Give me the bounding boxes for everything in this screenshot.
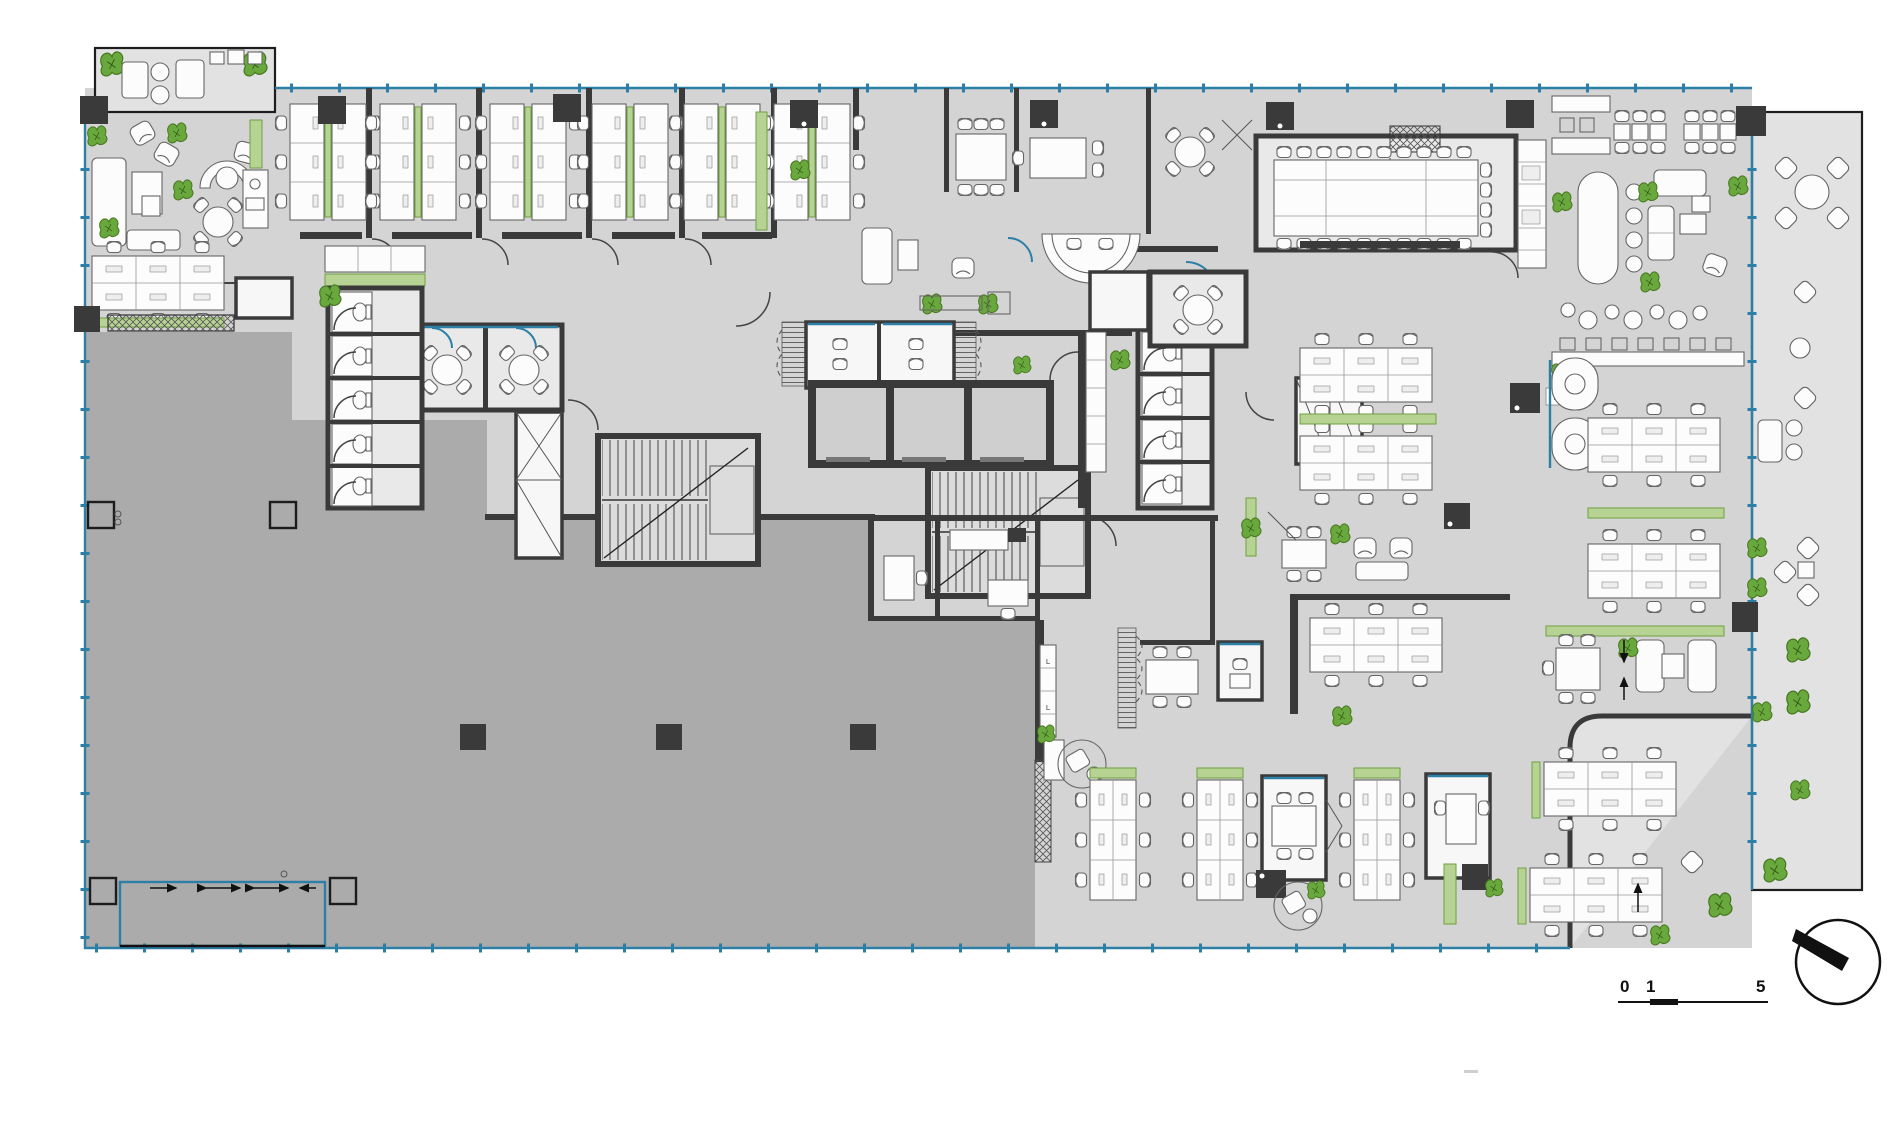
hatched-wall (108, 315, 234, 331)
wc-right (1138, 328, 1212, 508)
stray-mark (1464, 1070, 1478, 1073)
small-room (236, 278, 292, 318)
scale-bar: 0 1 5 (1618, 977, 1768, 1005)
phone-pods (777, 322, 981, 388)
terrace-right (1752, 112, 1862, 890)
stair-west (598, 436, 758, 564)
service-shaft (516, 412, 562, 558)
meeting-table-8 (956, 134, 1006, 180)
locker-label: L (1046, 705, 1051, 712)
floor-plan-drawing: METAL L L (0, 0, 1900, 1136)
phone-booth (1218, 642, 1262, 700)
locker-label: L (1046, 659, 1051, 666)
floor-plan-sheet: METAL L L (0, 0, 1900, 1136)
wc-left (328, 288, 422, 508)
north-indicator (1792, 920, 1880, 1004)
pantry (1518, 140, 1546, 268)
scale-tick-5: 5 (1756, 977, 1765, 996)
scale-tick-0: 0 (1620, 977, 1629, 996)
focus-room (1090, 272, 1148, 330)
interview-room-2 (1426, 774, 1490, 878)
scale-tick-1: 1 (1646, 977, 1655, 996)
oval-sofa (1578, 172, 1618, 284)
planter (250, 120, 262, 168)
